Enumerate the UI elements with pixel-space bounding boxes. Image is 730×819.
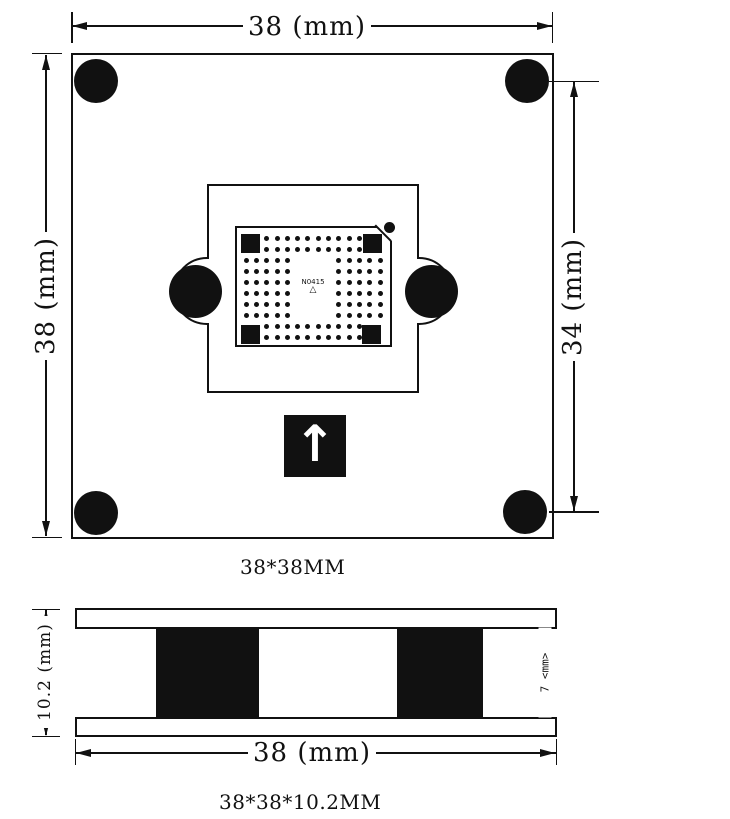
- bga-ball: [367, 280, 372, 285]
- bga-ball: [275, 291, 280, 296]
- bga-ball: [378, 269, 383, 274]
- mount-hole-top-right: [505, 59, 549, 103]
- bga-ball: [347, 291, 352, 296]
- bga-ball: [326, 335, 331, 340]
- left-screw-hole: [169, 265, 222, 318]
- bga-ball: [275, 280, 280, 285]
- bga-ball: [254, 302, 259, 307]
- arrowhead-right: [537, 22, 552, 30]
- top-view-caption: 38*38MM: [240, 555, 345, 579]
- chip-index-triangle: △: [292, 286, 334, 295]
- bga-ball: [378, 313, 383, 318]
- bga-ball: [285, 269, 290, 274]
- bga-ball: [347, 258, 352, 263]
- bga-ball: [275, 258, 280, 263]
- bga-ball: [336, 313, 341, 318]
- bga-ball: [326, 247, 331, 252]
- bga-ball: [347, 324, 352, 329]
- bga-ball: [264, 335, 269, 340]
- bga-ball: [336, 236, 341, 241]
- bga-ball: [336, 258, 341, 263]
- bga-ball: [254, 291, 259, 296]
- dim-total-height-label: 10.2 (mm): [35, 616, 55, 728]
- bga-ball: [357, 313, 362, 318]
- top-board-bar: [75, 608, 557, 629]
- bga-ball: [285, 335, 290, 340]
- mount-hole-bottom-left: [74, 491, 118, 535]
- bga-ball: [347, 335, 352, 340]
- bga-ball: [357, 269, 362, 274]
- bga-ball: [275, 236, 280, 241]
- bga-ball: [285, 324, 290, 329]
- arrowhead-down: [42, 521, 50, 536]
- bga-ball: [367, 313, 372, 318]
- bga-ball: [347, 302, 352, 307]
- bga-ball: [378, 291, 383, 296]
- bga-ball: [347, 247, 352, 252]
- bga-ball: [244, 313, 249, 318]
- bga-ball: [367, 302, 372, 307]
- bga-ball: [378, 280, 383, 285]
- pin1-dot: [384, 222, 395, 233]
- bga-ball: [316, 335, 321, 340]
- bga-ball: [254, 258, 259, 263]
- bga-ball: [275, 247, 280, 252]
- bga-ball: [244, 291, 249, 296]
- mount-hole-bottom-right: [503, 490, 547, 534]
- bga-ball: [357, 324, 362, 329]
- bga-ball: [357, 236, 362, 241]
- arrowhead-up: [42, 55, 50, 70]
- bga-ball: [244, 258, 249, 263]
- bga-ball: [285, 291, 290, 296]
- bga-ball: [264, 236, 269, 241]
- bga-ball: [378, 302, 383, 307]
- bga-ball: [316, 236, 321, 241]
- bga-ball: [336, 291, 341, 296]
- bga-ball: [305, 236, 310, 241]
- bga-ball: [357, 302, 362, 307]
- bga-ball: [347, 236, 352, 241]
- up-arrow-icon: ↑: [294, 419, 336, 469]
- extension-tick: [32, 537, 62, 539]
- arrowhead-right: [540, 749, 555, 757]
- bga-ball: [367, 291, 372, 296]
- bga-ball: [347, 280, 352, 285]
- bga-ball: [264, 313, 269, 318]
- bga-ball: [295, 335, 300, 340]
- bga-ball: [316, 324, 321, 329]
- bga-ball: [285, 302, 290, 307]
- bga-ball: [336, 280, 341, 285]
- bga-ball: [264, 291, 269, 296]
- bga-ball: [336, 302, 341, 307]
- bga-ball: [336, 269, 341, 274]
- bga-ball: [244, 269, 249, 274]
- bga-ball: [367, 269, 372, 274]
- bga-ball: [285, 236, 290, 241]
- dim-bottom-width-label: 38 (mm): [248, 739, 376, 767]
- right-screw-hole: [405, 265, 458, 318]
- bga-ball: [275, 335, 280, 340]
- bga-ball: [347, 269, 352, 274]
- bga-ball: [378, 258, 383, 263]
- bga-ball: [264, 258, 269, 263]
- bga-ball: [336, 324, 341, 329]
- bga-ball: [347, 313, 352, 318]
- mount-hole-top-left: [74, 59, 118, 103]
- side-view-caption: 38*38*10.2MM: [219, 790, 381, 814]
- engineering-drawing: 38 (mm) 38 (mm) 34 (mm): [0, 0, 730, 819]
- bga-ball: [357, 335, 362, 340]
- bga-ball: [316, 247, 321, 252]
- arrowhead-left: [76, 749, 91, 757]
- right-spacer-block: [397, 628, 483, 718]
- bga-ball: [305, 247, 310, 252]
- bga-ball: [326, 236, 331, 241]
- dim-right-pitch-label: 34 (mm): [559, 233, 587, 361]
- bga-ball: [264, 302, 269, 307]
- bottom-board-bar: [75, 717, 557, 737]
- bga-ball: [264, 247, 269, 252]
- bga-ball: [305, 324, 310, 329]
- bga-ball: [357, 291, 362, 296]
- bga-ball: [264, 280, 269, 285]
- bga-ball: [244, 280, 249, 285]
- extension-tick: [32, 53, 62, 55]
- dim-gap-height-label: 7 <mm>: [539, 628, 552, 718]
- bga-ball: [367, 258, 372, 263]
- arrowhead-up: [570, 82, 578, 97]
- bga-ball: [285, 280, 290, 285]
- bga-ball: [244, 302, 249, 307]
- chip-marking: N0415 △: [292, 279, 334, 295]
- bga-ball: [275, 269, 280, 274]
- bga-ball: [264, 324, 269, 329]
- bga-ball: [295, 236, 300, 241]
- bga-ball: [285, 258, 290, 263]
- bga-ball: [275, 302, 280, 307]
- bga-ball: [336, 247, 341, 252]
- dim-top-width-label: 38 (mm): [243, 13, 371, 41]
- bga-ball: [357, 258, 362, 263]
- bga-ball: [357, 280, 362, 285]
- bga-ball: [336, 335, 341, 340]
- extension-tick: [549, 511, 599, 513]
- arrowhead-left: [72, 22, 87, 30]
- bga-ball: [285, 247, 290, 252]
- bga-ball: [305, 335, 310, 340]
- orientation-mark: ↑: [284, 415, 346, 477]
- bga-ball: [326, 324, 331, 329]
- bga-ball: [254, 269, 259, 274]
- arrowhead-down: [570, 496, 578, 511]
- left-spacer-block: [156, 628, 259, 718]
- bga-ball: [275, 324, 280, 329]
- bga-ball: [254, 280, 259, 285]
- bga-ball: [295, 247, 300, 252]
- bga-ball: [285, 313, 290, 318]
- bga-ball: [254, 313, 259, 318]
- dim-left-height-label: 38 (mm): [32, 232, 60, 360]
- bga-ball: [295, 324, 300, 329]
- bga-ball: [264, 269, 269, 274]
- bga-ball: [357, 247, 362, 252]
- bga-ball: [275, 313, 280, 318]
